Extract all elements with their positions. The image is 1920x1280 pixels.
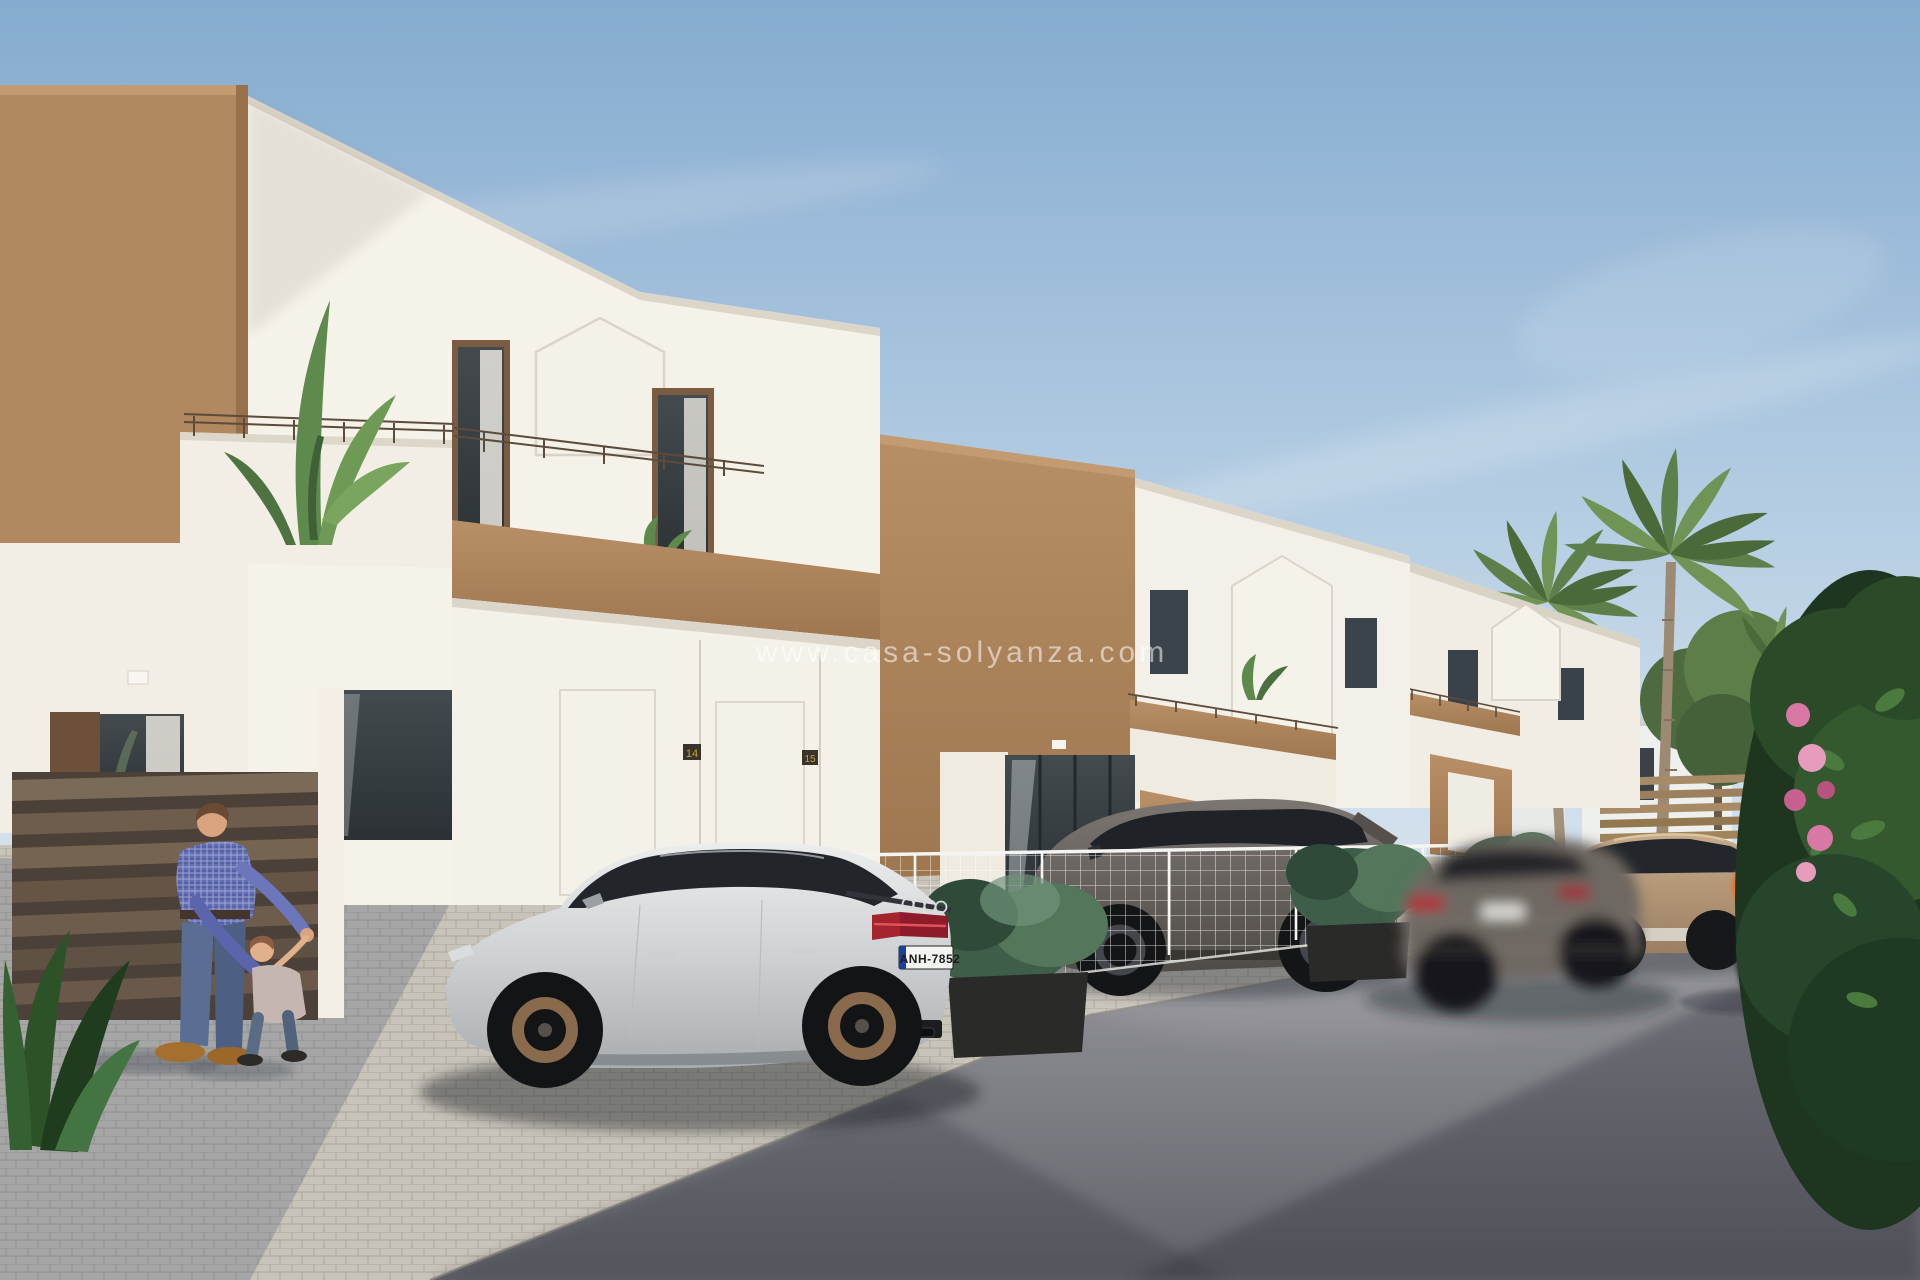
moving-car-shadow [1365, 974, 1675, 1022]
man-jeans-leg [180, 922, 214, 1046]
license-plate: ANH-7852 [899, 946, 960, 969]
fence-pillar [318, 688, 344, 1018]
house-2-wall-lamp [1052, 740, 1066, 749]
house-number-15: 15 [804, 754, 816, 765]
planter-box [1306, 922, 1410, 982]
child-shoe-2 [281, 1050, 307, 1062]
watermark-text: www.casa-solyanza.com [755, 636, 1168, 669]
audi-wheel-rear [802, 966, 922, 1086]
audi-taillight-left [872, 912, 900, 940]
moving-car-taillight-left [1408, 896, 1444, 911]
house-2-window-2 [1345, 618, 1377, 688]
audi-door-handle [648, 952, 678, 959]
man-shoe [155, 1042, 205, 1062]
house-1-tan-roof-edge [0, 85, 248, 95]
house-3-window-2 [1558, 668, 1584, 720]
moving-car-wheel [1414, 932, 1498, 1012]
moving-car-taillight-right [1558, 886, 1590, 899]
architectural-render-viewport: 14 15 [0, 0, 1920, 1280]
audi-door-handle-2 [790, 948, 818, 955]
child-jeans-leg-2 [288, 1016, 293, 1052]
house-number-plaque-14: 14 [683, 744, 701, 760]
house-number-plaque-15: 15 [802, 750, 818, 765]
child-shoe [237, 1054, 263, 1066]
wall-lamp [128, 671, 148, 684]
house-number-14: 14 [686, 748, 698, 760]
audi-wheel-front [487, 972, 603, 1088]
child-jeans-leg [252, 1018, 258, 1054]
planter-box [948, 972, 1088, 1058]
plate-number: ANH-7852 [900, 952, 961, 966]
